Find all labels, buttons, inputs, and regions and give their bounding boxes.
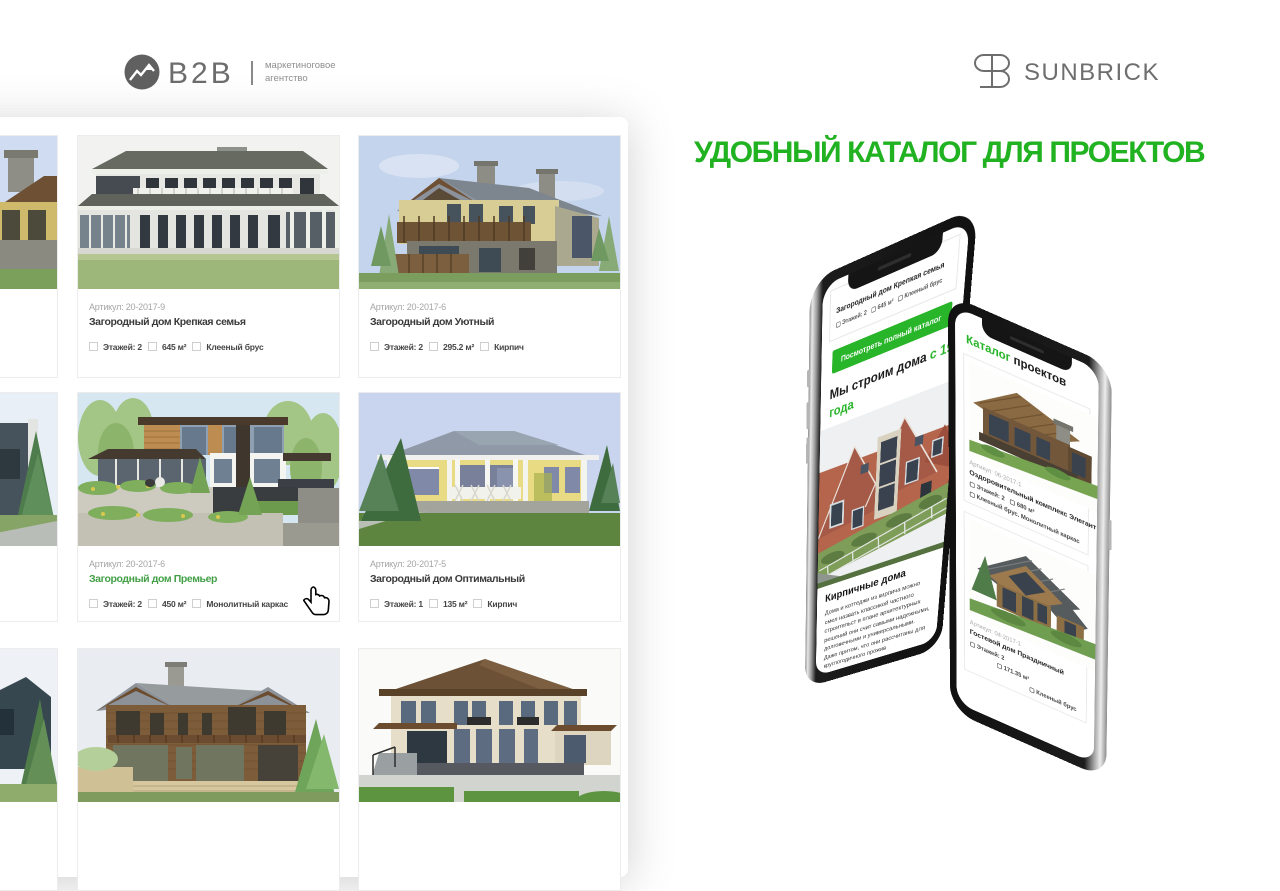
svg-text:агентство: агентство <box>265 73 308 84</box>
svg-text:маркетиноговое: маркетиноговое <box>265 60 336 71</box>
svg-text:SUNBRICK: SUNBRICK <box>1024 59 1160 86</box>
svg-text:B2B: B2B <box>168 57 234 90</box>
